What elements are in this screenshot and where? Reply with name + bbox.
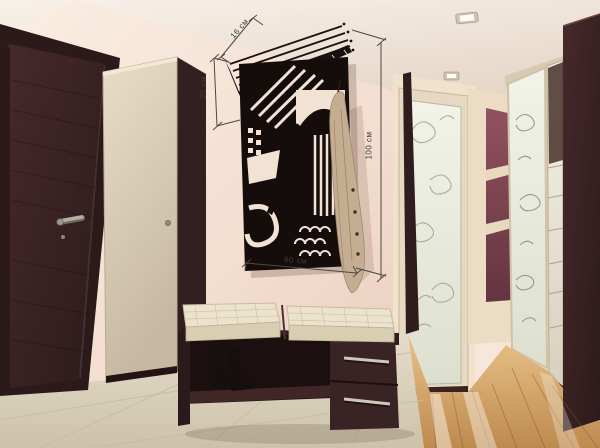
spotlight [456,12,479,24]
hallway-interior-scene: 16 см 25 см 100 см 60 см [0,0,600,448]
scene-render [0,0,600,448]
dimension-label-panel-width: 60 см [284,255,308,266]
spotlight [444,72,459,80]
sliding-wardrobe [505,56,563,400]
mirror-door [547,60,563,388]
dimension-label-shelf-height: 25 см [199,76,208,99]
floral-glass-door [508,68,547,368]
wenge-side-panel [563,14,600,432]
dimension-label-panel-height: 100 см [365,131,374,159]
bench-left-leg [178,332,190,426]
keyhole [61,235,65,239]
maroon-niche-shelves [468,88,514,344]
drawer-unit [330,328,399,430]
wardrobe-knob [165,220,170,225]
wardrobe-front-door [103,57,177,382]
